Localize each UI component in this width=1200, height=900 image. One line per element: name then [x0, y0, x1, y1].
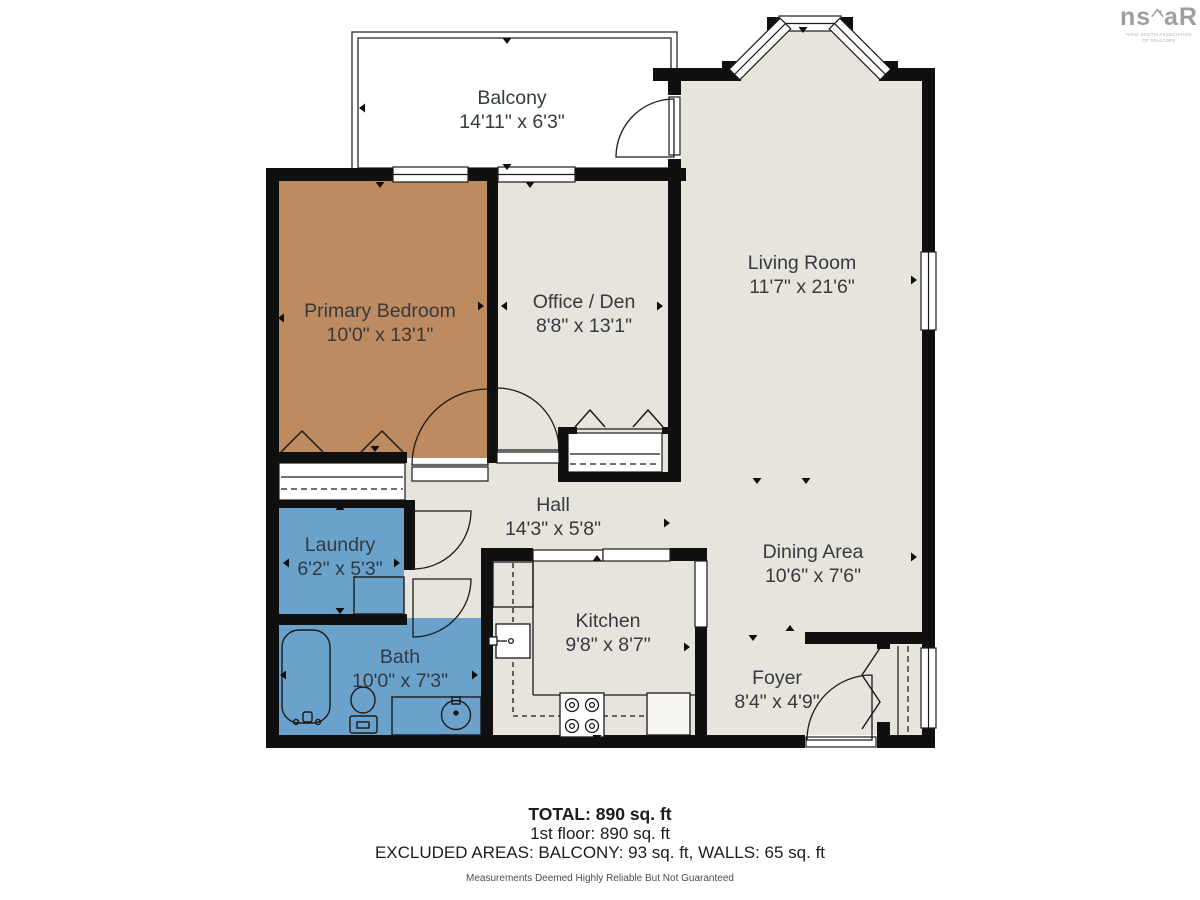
room-dims: 8'8" x 13'1": [533, 315, 636, 339]
room-label-balcony: Balcony 14'11" x 6'3": [459, 87, 565, 135]
logo-text-left: ns: [1120, 5, 1151, 30]
room-name: Office / Den: [533, 291, 636, 315]
room-name: Hall: [505, 494, 601, 518]
excluded-areas: EXCLUDED AREAS: BALCONY: 93 sq. ft, WALL…: [0, 844, 1200, 862]
total-area: TOTAL: 890 sq. ft: [0, 805, 1200, 824]
room-label-foyer: Foyer 8'4" x 4'9": [734, 667, 819, 715]
room-dims: 10'0" x 13'1": [304, 324, 456, 348]
room-name: Living Room: [748, 252, 856, 276]
wall-office-closet-corner-r: [662, 427, 681, 434]
kitchen-dining-opening: [695, 561, 707, 627]
room-label-kitchen: Kitchen 9'8" x 8'7": [565, 610, 650, 658]
wall-closet-stub-top: [877, 634, 890, 649]
room-dims: 14'3" x 5'8": [505, 518, 601, 542]
wall-dining-foyer: [805, 632, 922, 644]
window-office: [498, 167, 575, 182]
wall-bedroom-closet: [266, 452, 407, 463]
wall-kitchen-top-left: [481, 548, 533, 561]
floor-plan-drawing: [0, 0, 1200, 900]
room-dims: 11'7" x 21'6": [748, 276, 856, 300]
floor-plan: Balcony 14'11" x 6'3" Primary Bedroom 10…: [0, 0, 1200, 900]
room-label-office-den: Office / Den 8'8" x 13'1": [533, 291, 636, 339]
room-dims: 10'6" x 7'6": [763, 565, 864, 589]
wall-laundry-bath: [266, 614, 407, 625]
room-name: Kitchen: [565, 610, 650, 634]
logo-tagline: NOVA SCOTIA ASSOCIATION OF REALTORS: [1120, 32, 1198, 45]
stove: [560, 693, 604, 737]
house-roof-icon: [1151, 6, 1164, 19]
kitchen-pass-through: [533, 549, 670, 561]
room-name: Balcony: [459, 87, 565, 111]
logo-text-right: aR: [1164, 5, 1198, 30]
room-dims: 6'2" x 5'3": [297, 558, 382, 582]
room-dims: 9'8" x 8'7": [565, 634, 650, 658]
wall-exterior-right: [922, 68, 935, 748]
window-living-right: [921, 252, 936, 330]
room-name: Foyer: [734, 667, 819, 691]
room-dims: 10'0" x 7'3": [352, 670, 448, 694]
first-floor-area: 1st floor: 890 sq. ft: [0, 825, 1200, 843]
wall-kitchen-top-right: [670, 548, 707, 561]
wall-office-closet-left: [558, 427, 568, 475]
room-label-dining-area: Dining Area 10'6" x 7'6": [763, 541, 864, 589]
area-summary: TOTAL: 890 sq. ft 1st floor: 890 sq. ft …: [0, 805, 1200, 884]
nsar-logo-wordmark: ns aR: [1120, 5, 1198, 30]
wall-kitchen-right: [695, 625, 707, 735]
room-label-hall: Hall 14'3" x 5'8": [505, 494, 601, 542]
door-balcony: [616, 95, 681, 159]
room-dims: 14'11" x 6'3": [459, 111, 565, 135]
wall-closet-stub-bottom: [877, 722, 890, 735]
window-foyer-right: [921, 648, 936, 728]
wall-office-closet-bottom: [558, 472, 681, 482]
disclaimer: Measurements Deemed Highly Reliable But …: [0, 874, 1200, 885]
room-label-living-room: Living Room 11'7" x 21'6": [748, 252, 856, 300]
wall-exterior-top: [266, 168, 686, 181]
wall-office-closet-corner-l: [558, 427, 577, 434]
room-label-primary-bedroom: Primary Bedroom 10'0" x 13'1": [304, 300, 456, 348]
window-bedroom: [393, 167, 468, 182]
room-dims: 8'4" x 4'9": [734, 691, 819, 715]
room-name: Dining Area: [763, 541, 864, 565]
room-label-bath: Bath 10'0" x 7'3": [352, 646, 448, 694]
nsar-logo: ns aR NOVA SCOTIA ASSOCIATION OF REALTOR…: [1120, 5, 1198, 45]
room-name: Laundry: [297, 534, 382, 558]
bedroom-closet: [279, 463, 405, 500]
office-closet: [568, 433, 662, 472]
room-name: Bath: [352, 646, 448, 670]
room-name: Primary Bedroom: [304, 300, 456, 324]
room-label-laundry: Laundry 6'2" x 5'3": [297, 534, 382, 582]
refrigerator: [647, 693, 690, 735]
